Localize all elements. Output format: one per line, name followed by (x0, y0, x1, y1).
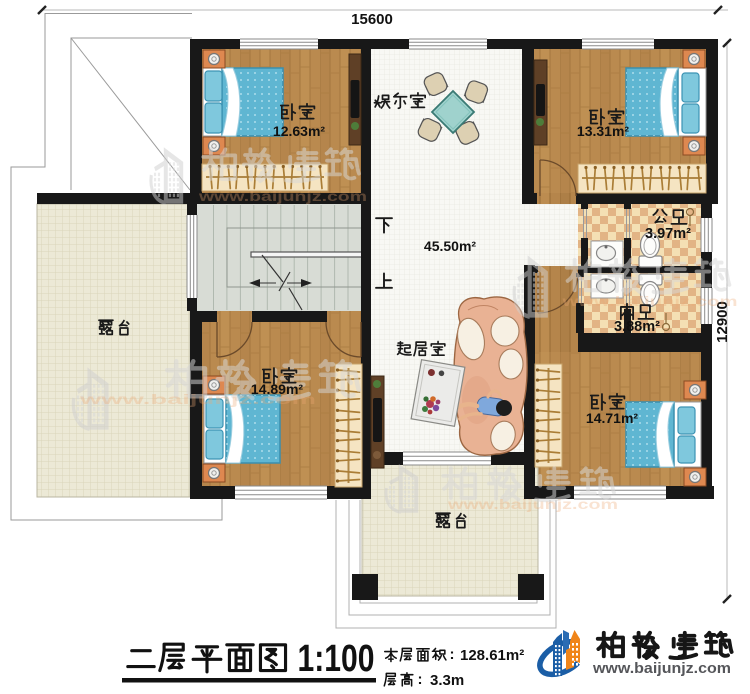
svg-text:128.61m²: 128.61m² (460, 647, 524, 664)
svg-text:12.63m²: 12.63m² (273, 123, 325, 139)
svg-text:www.baijunjz.com: www.baijunjz.com (447, 496, 618, 512)
svg-text:3.97m²: 3.97m² (645, 226, 691, 242)
svg-text:www.baijunjz.com: www.baijunjz.com (592, 660, 731, 677)
svg-text::: : (418, 671, 423, 688)
svg-text:45.50m²: 45.50m² (424, 238, 476, 254)
svg-text:14.71m²: 14.71m² (586, 410, 638, 426)
svg-text:15600: 15600 (351, 11, 393, 28)
svg-text:14.89m²: 14.89m² (251, 381, 303, 397)
svg-text::: : (450, 646, 455, 663)
svg-text:3.88m²: 3.88m² (614, 319, 660, 335)
svg-text:13.31m²: 13.31m² (577, 123, 629, 139)
svg-text:www.baijunjz.com: www.baijunjz.com (198, 188, 367, 204)
svg-text:1:100: 1:100 (298, 638, 375, 680)
svg-text:3.3m: 3.3m (430, 672, 464, 689)
